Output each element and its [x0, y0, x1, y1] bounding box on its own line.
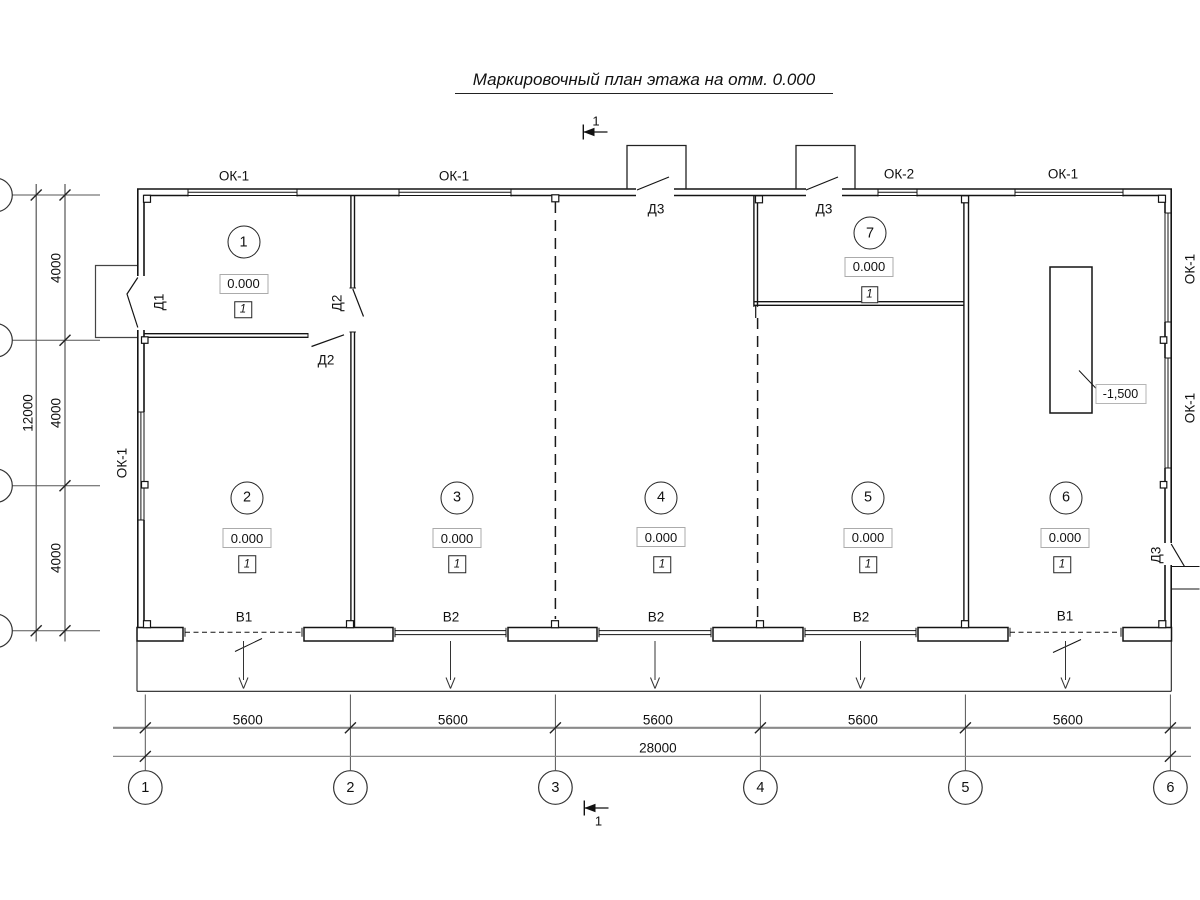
gate-label-v2-1: В2 [443, 610, 460, 624]
section-mark-bottom-label: 1 [595, 813, 602, 828]
room-floor-type-2-text: 1 [244, 558, 250, 570]
left-axis-circles [0, 178, 12, 647]
window-label-ok1-right-1: ОК-1 [1183, 254, 1197, 284]
door-d2-lower-leaf [312, 335, 345, 347]
window-label-ok1-right-2: ОК-1 [1183, 393, 1197, 423]
room-elevation-7-text: 0.000 [853, 259, 886, 274]
room-number-3-text: 3 [453, 490, 461, 506]
floor-plan-drawing: Маркировочный план этажа на отм. 0.000 1… [0, 0, 1200, 900]
room-floor-type-6: 1 [1053, 556, 1071, 574]
room-elevation-6: 0.000 [1041, 528, 1090, 548]
window-label-ok1-left: ОК-1 [115, 448, 129, 478]
grid-axis-5: 5 [961, 780, 969, 796]
room-elevation-6-text: 0.000 [1049, 530, 1082, 545]
door-d3-side-leaf [1171, 544, 1184, 567]
gate-label-v1-1: В1 [236, 610, 253, 624]
room-number-1-text: 1 [239, 234, 247, 250]
grid-axis-1: 1 [141, 780, 149, 796]
room-elevation-4: 0.000 [637, 527, 686, 547]
section-marks [583, 125, 608, 816]
room-number-5: 5 [852, 481, 885, 514]
pit-elevation-label: -1,500 [1095, 384, 1146, 404]
room-elevation-5: 0.000 [844, 528, 893, 548]
room-elevation-1: 0.000 [219, 274, 268, 294]
room-elevation-3-text: 0.000 [441, 531, 474, 546]
gate-label-v2-2: В2 [648, 610, 665, 624]
room-floor-type-1-text: 1 [240, 304, 246, 316]
windows [137, 189, 1172, 520]
room-floor-type-3-text: 1 [454, 558, 460, 570]
dim-5600-1: 5600 [233, 713, 263, 727]
dim-12000-total: 12000 [21, 394, 35, 432]
room-number-7: 7 [854, 217, 887, 250]
room-floor-type-5: 1 [859, 556, 877, 574]
door-label-d2-upper: Д2 [330, 294, 344, 311]
room-floor-type-4-text: 1 [659, 559, 665, 571]
room-number-3: 3 [441, 481, 474, 514]
room-floor-type-6-text: 1 [1059, 559, 1065, 571]
room-number-7-text: 7 [866, 225, 874, 241]
door-label-d2-lower: Д2 [318, 353, 335, 367]
door-label-d1: Д1 [152, 293, 166, 310]
inspection-pit [1050, 267, 1099, 413]
entry-porch [96, 266, 138, 338]
grid-axis-4: 4 [756, 780, 764, 796]
apron-strip [137, 641, 1171, 691]
grid-axis-2: 2 [346, 780, 354, 796]
window-label-ok1-top-1: ОК-1 [219, 169, 249, 183]
gate-label-v2-3: В2 [853, 610, 870, 624]
grid-axis-3: 3 [551, 780, 559, 796]
room-elevation-2: 0.000 [223, 528, 272, 548]
window-label-ok2-top: ОК-2 [884, 167, 914, 181]
room-elevation-2-text: 0.000 [231, 531, 264, 546]
room-floor-type-4: 1 [653, 556, 671, 574]
pit-elevation-text: -1,500 [1103, 387, 1138, 401]
window-label-ok1-top-3: ОК-1 [1048, 167, 1078, 181]
door-label-d3-top-left: Д3 [648, 202, 665, 216]
room-number-2-text: 2 [243, 490, 251, 506]
dim-4000-2: 4000 [49, 398, 63, 428]
room-floor-type-2: 1 [238, 555, 256, 573]
room-floor-type-7-text: 1 [866, 289, 872, 301]
room-elevation-3: 0.000 [433, 528, 482, 548]
room-number-4-text: 4 [657, 490, 665, 506]
door-d2-upper-leaf [353, 289, 364, 317]
room-number-1: 1 [227, 226, 260, 259]
room-floor-type-1: 1 [234, 301, 252, 319]
dim-4000-3: 4000 [49, 543, 63, 573]
room-elevation-1-text: 0.000 [227, 276, 260, 291]
room-number-6: 6 [1050, 481, 1083, 514]
room-number-5-text: 5 [864, 490, 872, 506]
room-floor-type-7: 1 [861, 286, 879, 304]
dim-5600-3: 5600 [643, 713, 673, 727]
gate-label-v1-2: В1 [1057, 609, 1074, 623]
door-label-d3-side: Д3 [1149, 547, 1163, 564]
dim-5600-5: 5600 [1053, 713, 1083, 727]
dim-4000-1: 4000 [49, 252, 63, 282]
section-mark-top-label: 1 [592, 113, 599, 128]
gate-entry-arrows [239, 641, 1070, 689]
door-d1-leaf [127, 278, 138, 328]
vestibules [627, 146, 855, 190]
room-number-6-text: 6 [1062, 490, 1070, 506]
dim-28000-total: 28000 [639, 742, 677, 756]
drawing-title: Маркировочный план этажа на отм. 0.000 [455, 70, 833, 94]
plan-linework [0, 0, 1200, 900]
room-elevation-4-text: 0.000 [645, 530, 678, 545]
room-floor-type-5-text: 1 [865, 559, 871, 571]
grid-axis-6: 6 [1166, 780, 1174, 796]
room-number-4: 4 [645, 481, 678, 514]
room-elevation-5-text: 0.000 [852, 530, 885, 545]
room-number-2: 2 [231, 481, 264, 514]
dim-5600-4: 5600 [848, 713, 878, 727]
door-label-d3-top-right: Д3 [816, 202, 833, 216]
window-label-ok1-top-2: ОК-1 [439, 169, 469, 183]
dim-5600-2: 5600 [438, 713, 468, 727]
room-floor-type-3: 1 [448, 555, 466, 573]
room-elevation-7: 0.000 [845, 257, 894, 277]
grid-axis-circles [129, 771, 1188, 805]
